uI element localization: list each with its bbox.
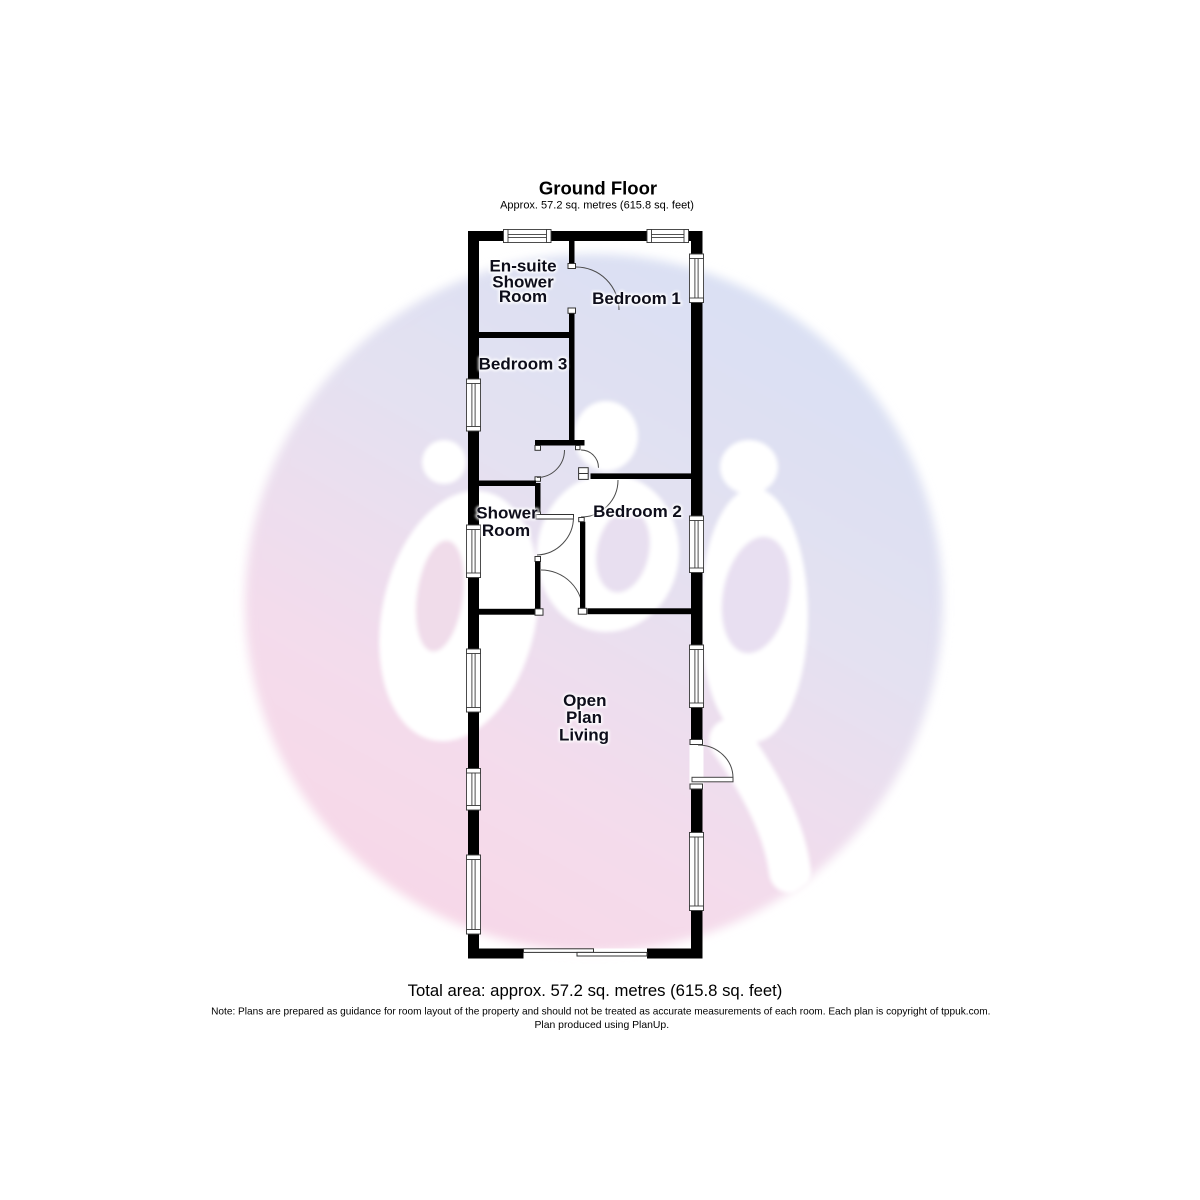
svg-text:Note: Plans are prepared as gu: Note: Plans are prepared as guidance for…: [211, 1007, 990, 1018]
svg-text:Bedroom 1: Bedroom 1: [592, 289, 681, 308]
svg-text:Shower: Shower: [476, 503, 538, 522]
svg-text:Total area: approx. 57.2 sq. m: Total area: approx. 57.2 sq. metres (615…: [408, 981, 783, 1000]
svg-text:Plan produced using PlanUp.: Plan produced using PlanUp.: [535, 1020, 670, 1031]
svg-text:Bedroom 2: Bedroom 2: [593, 502, 682, 521]
svg-text:Bedroom 3: Bedroom 3: [479, 355, 568, 374]
svg-text:Open: Open: [563, 691, 606, 710]
svg-text:Ground Floor: Ground Floor: [539, 178, 657, 199]
svg-text:Living: Living: [559, 726, 609, 745]
svg-text:Room: Room: [499, 287, 547, 306]
svg-text:Plan: Plan: [566, 708, 602, 727]
svg-text:Room: Room: [482, 521, 530, 540]
svg-text:Approx. 57.2 sq. metres (615.8: Approx. 57.2 sq. metres (615.8 sq. feet): [500, 200, 694, 212]
